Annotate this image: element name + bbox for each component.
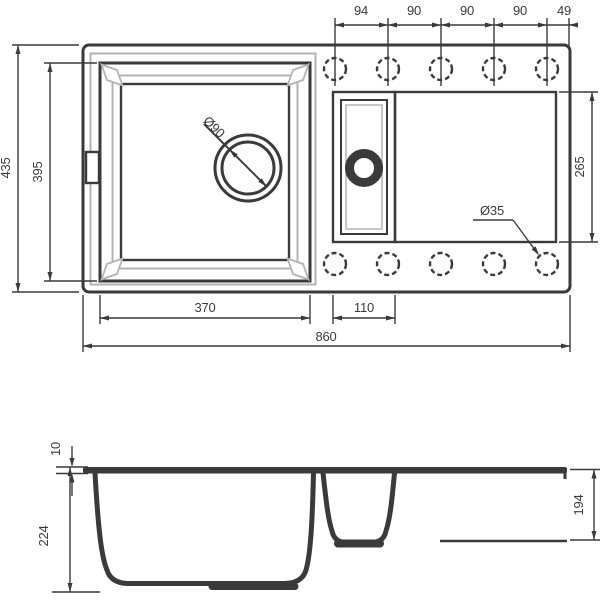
tap-hole-diameter-label: Ø35	[480, 203, 504, 218]
dim-half-bowl-width: 110	[333, 295, 395, 324]
dim-hole-spacing-5: 49	[557, 3, 571, 18]
top-view: Ø90 Ø35	[83, 18, 570, 292]
top-dimension-chain: 94 90 90 90 49	[335, 3, 578, 28]
dim-half-bowl-width-label: 110	[354, 300, 374, 315]
section-view	[83, 467, 567, 587]
drawing-canvas: Ø90 Ø35	[0, 0, 605, 600]
dim-hole-spacing-1: 94	[354, 3, 368, 18]
dim-bowl-width-label: 370	[194, 300, 215, 315]
tap-hole	[483, 253, 505, 275]
dim-overall-depth-label: 435	[0, 157, 13, 178]
dim-rim-height-label: 10	[48, 442, 63, 456]
dim-rim-height: 10	[48, 442, 88, 496]
tap-hole	[536, 253, 558, 275]
tap-hole	[377, 253, 399, 275]
dim-bowl-width: 370	[100, 295, 310, 324]
dim-overall-width: 860	[83, 295, 570, 352]
tap-hole	[324, 253, 346, 275]
dim-bowl-depth-label: 224	[36, 525, 51, 546]
overflow-hole	[86, 152, 99, 183]
dim-right-section-depth-label: 265	[572, 156, 587, 177]
dim-hole-spacing-3: 90	[460, 3, 474, 18]
dim-bowl-depth: 224	[36, 467, 100, 592]
main-bowl-profile	[95, 473, 314, 584]
dim-hole-spacing-2: 90	[407, 3, 421, 18]
dim-overall-width-label: 860	[315, 329, 336, 344]
sink-technical-drawing: Ø90 Ø35	[0, 0, 605, 600]
dim-hole-spacing-4: 90	[513, 3, 527, 18]
half-bowl-profile	[323, 473, 395, 543]
dim-bowl-opening-depth-label: 395	[30, 161, 45, 182]
dim-right-depth: 194	[570, 470, 600, 541]
tap-hole	[430, 253, 452, 275]
dim-right-depth-label: 194	[571, 494, 586, 515]
